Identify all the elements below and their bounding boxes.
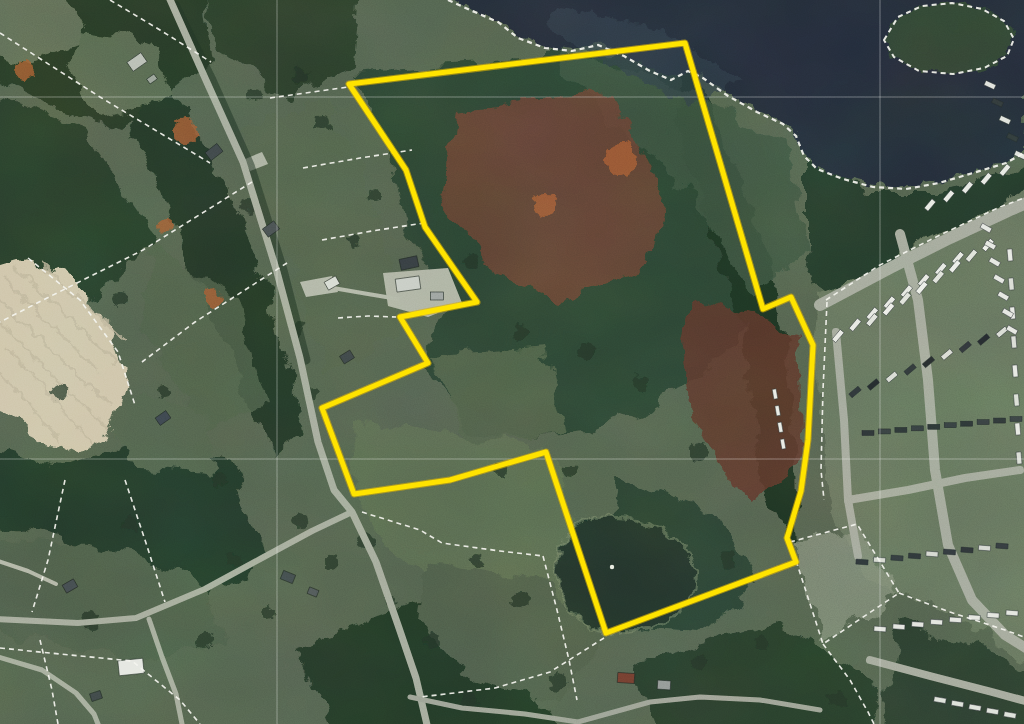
grain-overlay bbox=[0, 0, 1024, 724]
satellite-parcel-map bbox=[0, 0, 1024, 724]
map-svg bbox=[0, 0, 1024, 724]
photo-noise-layer bbox=[0, 0, 1024, 724]
